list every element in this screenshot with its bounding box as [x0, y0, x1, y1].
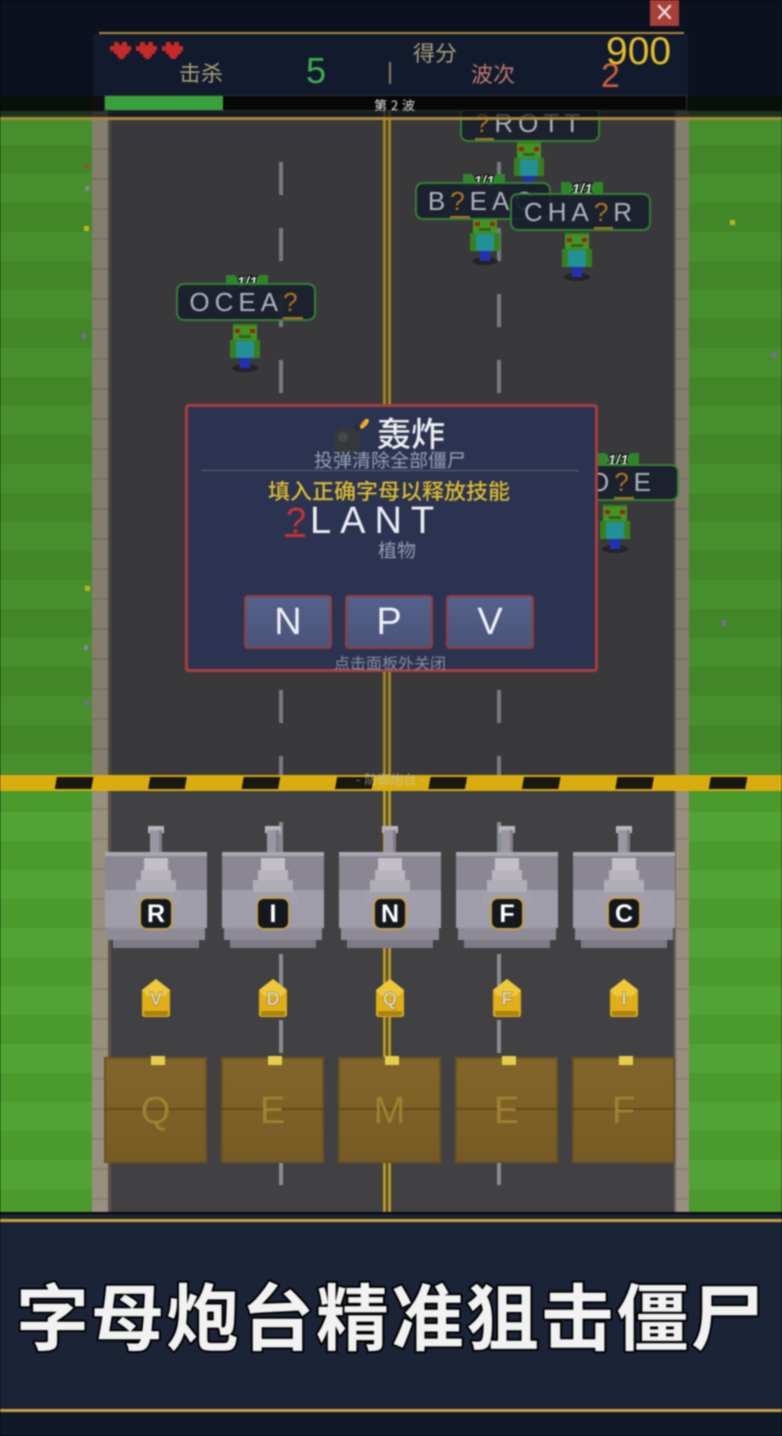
svg-text:D: D: [267, 989, 280, 1009]
svg-text:R: R: [147, 900, 165, 928]
svg-text:F: F: [502, 989, 513, 1009]
svg-text:V: V: [150, 989, 162, 1009]
svg-text:N: N: [381, 900, 399, 928]
svg-text:I: I: [270, 900, 277, 928]
svg-text:F: F: [499, 900, 514, 928]
svg-text:C: C: [615, 900, 633, 928]
svg-text:I: I: [621, 989, 626, 1009]
svg-text:Q: Q: [383, 989, 397, 1009]
